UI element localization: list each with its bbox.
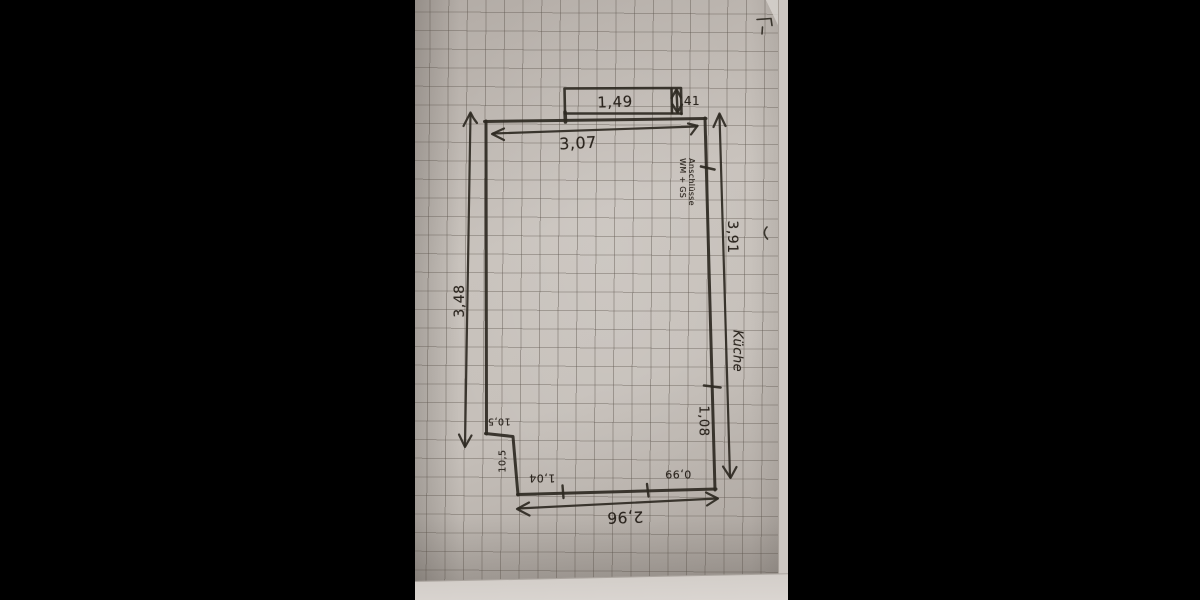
right-dimension-line	[714, 114, 737, 479]
floor-plan-photo: 1,49 41 3,07 Anschlüsse WM + GS 3,91 Küc…	[415, 0, 788, 600]
connections-note-line1: Anschlüsse	[687, 158, 696, 206]
window-depth-label: 41	[684, 94, 700, 108]
right-wall-upper-dimension-label: 3,91	[724, 220, 740, 253]
step-width-label: 10,5	[487, 416, 510, 427]
window-width-label: 1,49	[597, 92, 633, 111]
room-name-label: Küche	[730, 330, 745, 372]
connections-note-line2: WM + GS	[678, 158, 687, 206]
top-wall-dimension-label: 3,07	[559, 133, 598, 154]
bottom-left-segment-label: 1,04	[529, 472, 556, 485]
bottom-wall-total-label: 2,96	[606, 507, 643, 526]
stray-pen-marks	[757, 19, 772, 240]
right-wall-lower-dimension-label: 1,08	[696, 406, 711, 437]
letterbox-right	[788, 0, 1200, 600]
ink-drawing	[415, 0, 788, 600]
letterbox-left	[0, 0, 415, 600]
screenshot-root: 1,49 41 3,07 Anschlüsse WM + GS 3,91 Küc…	[0, 0, 1200, 600]
left-dimension-line	[459, 113, 477, 448]
step-depth-label: 10,5	[498, 449, 509, 472]
bottom-right-segment-label: 0,99	[665, 468, 692, 481]
left-wall-dimension-label: 3,48	[452, 284, 468, 317]
connections-note: Anschlüsse WM + GS	[678, 158, 696, 206]
